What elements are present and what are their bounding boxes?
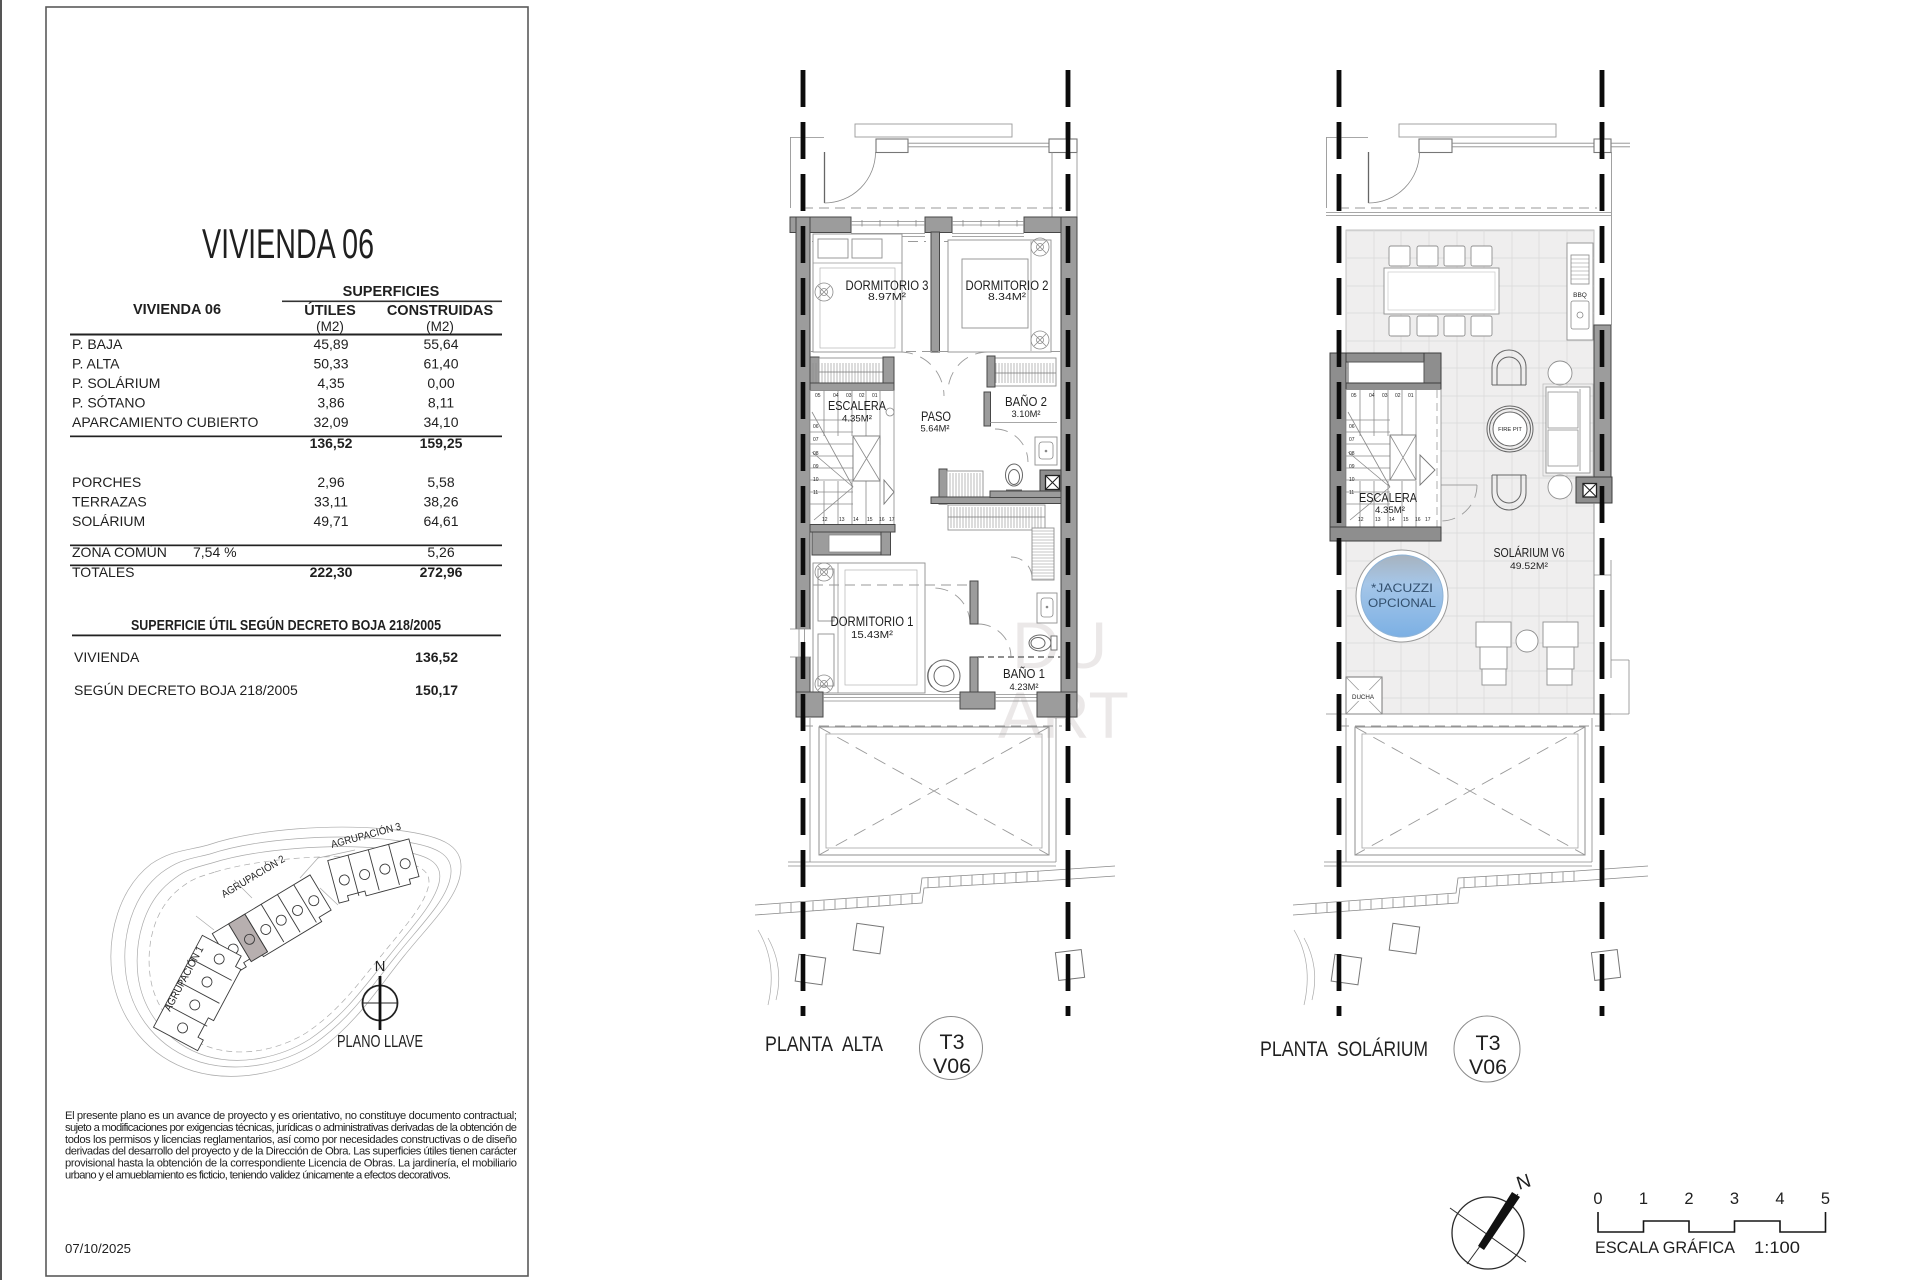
svg-text:3,86: 3,86 <box>317 395 344 411</box>
svg-text:TERRAZAS: TERRAZAS <box>72 494 147 510</box>
svg-text:SUPERFICIE ÚTIL SEGÚN DECRETO: SUPERFICIE ÚTIL SEGÚN DECRETO BOJA 218/2… <box>131 616 441 634</box>
svg-text:2,96: 2,96 <box>317 474 344 490</box>
svg-text:FIRE PIT: FIRE PIT <box>1498 427 1522 433</box>
svg-text:derivadas del desarrollo del p: derivadas del desarrollo del proyecto y … <box>65 1146 517 1158</box>
svg-text:03: 03 <box>1382 393 1388 399</box>
svg-text:01: 01 <box>1408 393 1414 399</box>
svg-text:13: 13 <box>839 517 845 523</box>
svg-text:todos los permisos y licencias: todos los permisos y licencias reglament… <box>65 1134 517 1146</box>
svg-text:3.10M²: 3.10M² <box>1012 409 1041 420</box>
svg-text:DUCHA: DUCHA <box>1352 694 1375 701</box>
svg-text:33,11: 33,11 <box>314 494 348 510</box>
svg-text:17: 17 <box>1425 517 1431 523</box>
svg-text:03: 03 <box>846 393 852 399</box>
svg-text:4.23M²: 4.23M² <box>1010 682 1039 693</box>
svg-text:09: 09 <box>1349 464 1355 470</box>
svg-text:T3: T3 <box>1476 1032 1501 1055</box>
svg-text:ESCALERA: ESCALERA <box>1359 491 1418 505</box>
svg-text:(M2): (M2) <box>316 319 344 334</box>
svg-text:BAÑO 2: BAÑO 2 <box>1005 395 1047 409</box>
svg-text:4.35M²: 4.35M² <box>1375 505 1405 516</box>
svg-text:sujeto a modificaciones por ex: sujeto a modificaciones por exigencias t… <box>65 1122 517 1134</box>
svg-text:OPCIONAL: OPCIONAL <box>1368 598 1437 610</box>
svg-text:N: N <box>1514 1171 1534 1195</box>
svg-text:16: 16 <box>1415 517 1421 523</box>
svg-text:*JACUZZI: *JACUZZI <box>1371 583 1433 595</box>
svg-text:45,89: 45,89 <box>313 336 348 352</box>
svg-text:ÚTILES: ÚTILES <box>304 301 356 319</box>
svg-text:VIVIENDA 06: VIVIENDA 06 <box>202 220 374 267</box>
svg-text:08: 08 <box>813 451 819 457</box>
svg-text:15.43M²: 15.43M² <box>851 630 894 641</box>
svg-text:1: 1 <box>1639 1190 1648 1208</box>
svg-text:04: 04 <box>1369 393 1375 399</box>
svg-text:02: 02 <box>859 393 865 399</box>
svg-text:T3: T3 <box>940 1031 965 1054</box>
svg-text:SEGÚN DECRETO BOJA 218/2005: SEGÚN DECRETO BOJA 218/2005 <box>74 682 298 698</box>
svg-text:(M2): (M2) <box>426 319 454 334</box>
svg-text:PLANTA: PLANTA <box>1260 1038 1328 1061</box>
svg-text:06: 06 <box>813 424 819 430</box>
svg-text:2: 2 <box>1684 1190 1693 1208</box>
svg-text:150,17: 150,17 <box>415 682 458 698</box>
svg-text:P. SOLÁRIUM: P. SOLÁRIUM <box>72 375 160 391</box>
svg-text:61,40: 61,40 <box>423 356 458 372</box>
svg-text:09: 09 <box>813 464 819 470</box>
svg-text:14: 14 <box>853 517 859 523</box>
svg-text:urbano y el amueblamiento es f: urbano y el amueblamiento es ficticio, t… <box>65 1170 451 1182</box>
svg-text:SOLÁRIUM V6: SOLÁRIUM V6 <box>1494 545 1565 560</box>
svg-text:05: 05 <box>1351 393 1357 399</box>
svg-text:50,33: 50,33 <box>313 356 348 372</box>
svg-text:5,26: 5,26 <box>427 544 454 560</box>
svg-text:12: 12 <box>1358 517 1364 523</box>
svg-text:provisional hasta la obtención: provisional hasta la obtención de la cor… <box>65 1158 517 1170</box>
svg-text:10: 10 <box>1349 477 1355 483</box>
svg-text:APARCAMIENTO CUBIERTO: APARCAMIENTO CUBIERTO <box>72 414 259 430</box>
svg-text:V06: V06 <box>1469 1056 1507 1079</box>
svg-text:04: 04 <box>833 393 839 399</box>
svg-text:VIVIENDA: VIVIENDA <box>74 649 140 665</box>
svg-text:DORMITORIO 2: DORMITORIO 2 <box>966 278 1049 293</box>
svg-text:49.52M²: 49.52M² <box>1510 561 1548 572</box>
svg-text:El presente plano es un avance: El presente plano es un avance de proyec… <box>65 1110 517 1122</box>
svg-text:7,54 %: 7,54 % <box>193 544 237 560</box>
svg-text:01: 01 <box>872 393 878 399</box>
svg-text:06: 06 <box>1349 424 1355 430</box>
svg-text:10: 10 <box>813 477 819 483</box>
svg-text:ESCALERA: ESCALERA <box>828 399 887 413</box>
svg-text:222,30: 222,30 <box>310 564 353 580</box>
svg-text:ALTA: ALTA <box>842 1033 883 1056</box>
svg-text:8.97M²: 8.97M² <box>868 292 907 303</box>
svg-text:32,09: 32,09 <box>313 414 348 430</box>
svg-text:P. ALTA: P. ALTA <box>72 356 120 372</box>
svg-text:272,96: 272,96 <box>420 564 463 580</box>
svg-text:PASO: PASO <box>921 409 951 424</box>
svg-text:PLANO LLAVE: PLANO LLAVE <box>337 1031 423 1051</box>
svg-text:5: 5 <box>1821 1190 1830 1208</box>
svg-text:05: 05 <box>815 393 821 399</box>
svg-text:SOLÁRIUM: SOLÁRIUM <box>1337 1038 1428 1061</box>
svg-text:16: 16 <box>879 517 885 523</box>
svg-text:V06: V06 <box>933 1055 971 1078</box>
svg-text:0,00: 0,00 <box>427 375 454 391</box>
svg-text:13: 13 <box>1375 517 1381 523</box>
svg-text:07: 07 <box>1349 437 1355 443</box>
svg-text:11: 11 <box>1349 490 1354 496</box>
svg-text:0: 0 <box>1593 1190 1602 1208</box>
svg-text:N: N <box>375 958 386 975</box>
svg-text:8.34M²: 8.34M² <box>988 292 1027 303</box>
svg-text:BBQ: BBQ <box>1573 292 1587 299</box>
svg-text:07/10/2025: 07/10/2025 <box>65 1241 131 1256</box>
svg-text:136,52: 136,52 <box>310 435 353 451</box>
svg-text:4: 4 <box>1775 1190 1784 1208</box>
svg-text:136,52: 136,52 <box>415 649 458 665</box>
svg-text:CONSTRUIDAS: CONSTRUIDAS <box>387 303 494 319</box>
svg-text:14: 14 <box>1389 517 1395 523</box>
svg-text:11: 11 <box>813 490 818 496</box>
svg-text:SOLÁRIUM: SOLÁRIUM <box>72 513 145 529</box>
svg-text:VIVIENDA 06: VIVIENDA 06 <box>133 302 221 318</box>
svg-text:12: 12 <box>822 517 828 523</box>
svg-text:BAÑO 1: BAÑO 1 <box>1003 667 1045 681</box>
svg-text:1:100: 1:100 <box>1754 1239 1800 1257</box>
svg-text:34,10: 34,10 <box>423 414 458 430</box>
svg-text:5,58: 5,58 <box>427 474 454 490</box>
svg-text:07: 07 <box>813 437 819 443</box>
svg-text:5.64M²: 5.64M² <box>921 424 950 435</box>
svg-text:08: 08 <box>1349 451 1355 457</box>
svg-text:ESCALA GRÁFICA: ESCALA GRÁFICA <box>1595 1238 1735 1257</box>
svg-text:15: 15 <box>1403 517 1409 523</box>
svg-text:159,25: 159,25 <box>420 435 463 451</box>
svg-text:49,71: 49,71 <box>313 513 348 529</box>
svg-text:4,35: 4,35 <box>317 375 344 391</box>
svg-text:PORCHES: PORCHES <box>72 474 141 490</box>
svg-text:DORMITORIO 1: DORMITORIO 1 <box>831 614 914 629</box>
svg-text:55,64: 55,64 <box>423 336 458 352</box>
svg-text:TOTALES: TOTALES <box>72 564 135 580</box>
svg-text:PLANTA: PLANTA <box>765 1033 833 1056</box>
svg-text:02: 02 <box>1395 393 1401 399</box>
svg-text:8,11: 8,11 <box>428 395 454 411</box>
svg-text:17: 17 <box>889 517 895 523</box>
svg-text:DORMITORIO 3: DORMITORIO 3 <box>846 278 929 293</box>
svg-text:38,26: 38,26 <box>423 494 458 510</box>
svg-text:SUPERFICIES: SUPERFICIES <box>343 284 440 300</box>
svg-text:3: 3 <box>1730 1190 1739 1208</box>
svg-text:P. SÓTANO: P. SÓTANO <box>72 395 146 411</box>
svg-text:ZONA COMÚN: ZONA COMÚN <box>72 544 167 560</box>
svg-text:15: 15 <box>867 517 873 523</box>
svg-text:4.35M²: 4.35M² <box>842 414 872 425</box>
svg-text:64,61: 64,61 <box>423 513 458 529</box>
svg-text:P. BAJA: P. BAJA <box>72 336 123 352</box>
